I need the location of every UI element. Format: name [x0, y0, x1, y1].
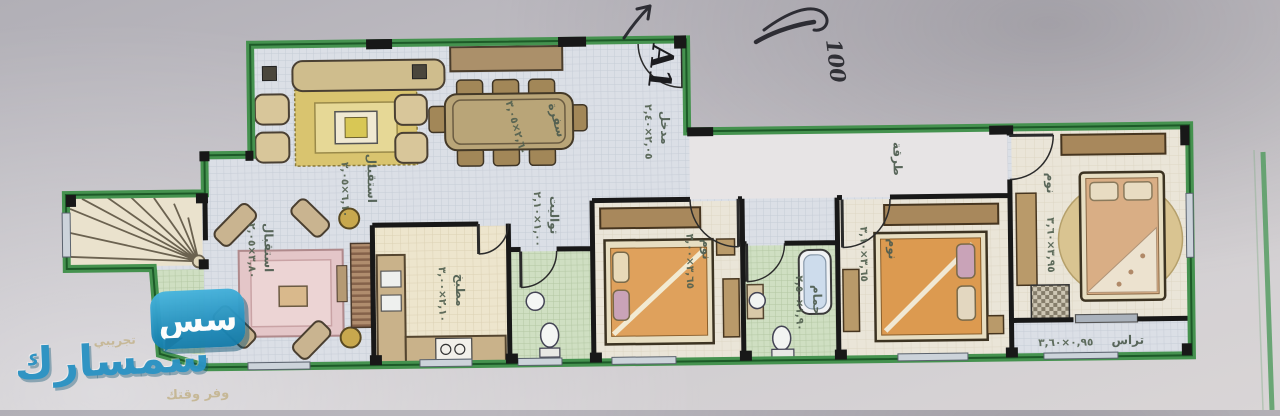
entrance-label: مدخل	[658, 111, 672, 145]
bathroom-label: حمام	[809, 285, 824, 315]
bedroom2-label: نوم	[884, 238, 899, 259]
bedroom3-label: نوم	[1043, 172, 1058, 193]
page-edge	[1254, 150, 1272, 410]
bedroom3-dims: ٣,٩٥×٣,٦٠	[1044, 217, 1057, 272]
corridor-floor	[689, 130, 1008, 200]
terrace-label: تراس	[1111, 333, 1144, 347]
reception-label: استقبال	[364, 154, 379, 203]
watermark-brand-text: سمسارك	[14, 336, 211, 387]
unit-label: A1	[640, 41, 681, 91]
bathroom-dims: ١,٩٠×٢,٥٠	[793, 275, 806, 330]
bedroom2-dims: ٣,٦٥×٣,١٠	[857, 227, 870, 282]
reception-dims: ٦,١٠×٣,٠٥	[339, 162, 352, 217]
toilet-dims: ١,٠٠×٢,١٠	[531, 192, 544, 247]
corridor-label: طرقة	[890, 142, 904, 176]
toilet-label: تواليت	[546, 196, 561, 234]
kitchen-label: مطبخ	[453, 274, 467, 307]
semsarak-watermark: سس تجريبي سمسارك وفر وقتك	[9, 282, 294, 416]
bedroom1-label: نوم	[698, 239, 713, 260]
sitting-room-label: استقبال	[261, 223, 276, 272]
entrance-dims: ٢,٠٥×٢,٤٠	[642, 104, 655, 159]
watermark-tagline-text: وفر وقتك	[166, 386, 230, 404]
terrace-dims: ٠,٩٥×٣,٦٠	[1038, 336, 1093, 349]
kitchen-dims: ٢,١٠×٣,٠٠	[436, 267, 449, 322]
pen-arrow	[624, 6, 650, 38]
pen-number: 100	[821, 38, 851, 85]
pen-slash	[756, 22, 814, 42]
staircase-floor	[68, 195, 203, 267]
sitting-room-dims: ٣,٨٠×٢,٠٥	[245, 223, 258, 278]
bedroom1-dims: ٣,٦٥×٣,٠٠	[683, 234, 696, 289]
